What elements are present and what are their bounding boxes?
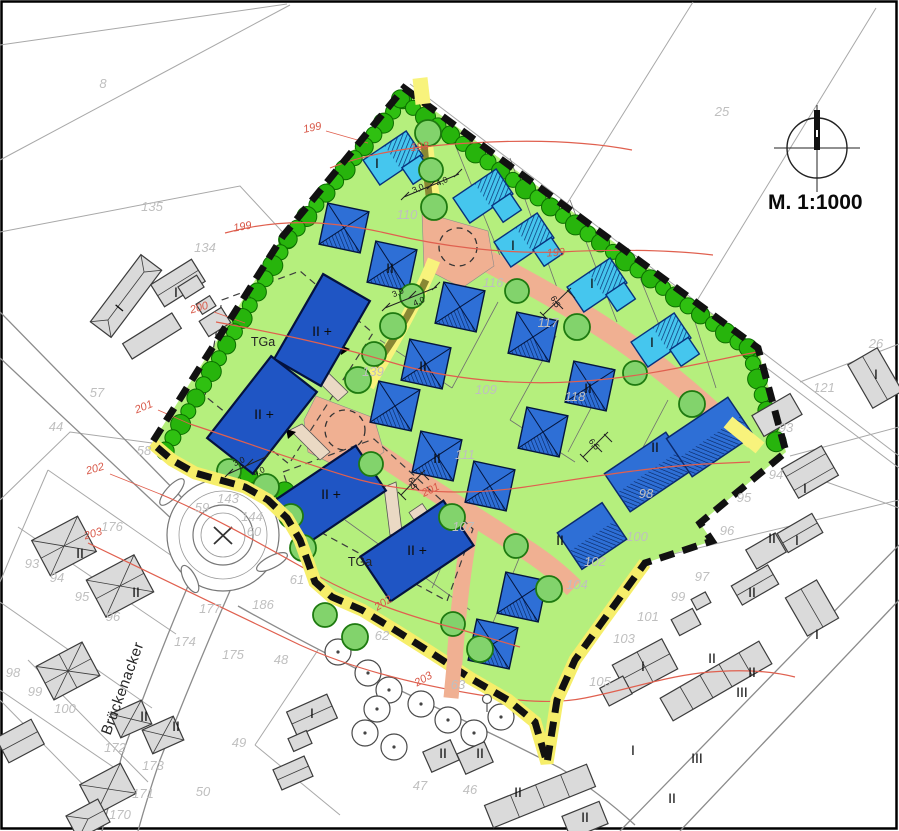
label-parcel-174: 174 <box>174 634 196 649</box>
existing-tree-dot <box>363 731 366 734</box>
label-parcel-96-w: 96 <box>106 609 121 624</box>
street-tree-icon <box>380 313 406 339</box>
label-parcel-25: 25 <box>714 104 730 119</box>
label-house-c5: I <box>650 334 654 350</box>
label-ex-t1b: II <box>476 745 484 761</box>
label-ex-e1: I <box>641 658 645 674</box>
label-parcel-172: 172 <box>104 740 126 755</box>
existing-tree-dot <box>387 688 390 691</box>
label-house-c4: I <box>590 275 594 291</box>
label-parcel-134: 134 <box>194 240 216 255</box>
label-parcel-95-w: 95 <box>75 589 90 604</box>
label-mfh-b3: II + <box>321 486 341 502</box>
label-house-p8: II <box>433 450 441 466</box>
label-parcel-121: 121 <box>813 380 835 395</box>
label-ex-e5: I <box>815 626 819 642</box>
existing-tree-dot <box>446 718 449 721</box>
label-parcel-171: 171 <box>132 786 154 801</box>
label-parcel-63: 63 <box>451 677 466 692</box>
label-parcel-144: 144 <box>241 509 263 524</box>
label-parcel-102: 102 <box>584 554 606 569</box>
label-parcel-98-s: 98 <box>639 486 654 501</box>
label-parcel-186: 186 <box>252 597 274 612</box>
label-parcel-104: 104 <box>566 577 588 592</box>
house-pyramid-5 <box>370 381 420 431</box>
label-parcel-57: 57 <box>90 385 105 400</box>
label-parcel-116: 116 <box>483 275 504 290</box>
label-ex-e3c: III <box>736 684 748 700</box>
label-scale-text: M. 1:1000 <box>768 191 863 214</box>
label-parcel-95-e: 95 <box>737 490 752 505</box>
label-mfh-b1: II + <box>312 323 332 339</box>
label-parcel-118: 118 <box>565 389 586 404</box>
label-contour-199-e: 199 <box>546 246 565 259</box>
street-tree-icon <box>623 361 647 385</box>
street-tree-icon <box>467 636 493 662</box>
label-parcel-93-w: 93 <box>25 556 40 571</box>
street-tree-icon <box>536 576 562 602</box>
street-tree-icon <box>505 279 529 303</box>
label-parcel-143: 143 <box>217 491 239 506</box>
existing-tree-dot <box>499 715 502 718</box>
label-parcel-101: 101 <box>637 609 659 624</box>
label-house-c1: I <box>375 155 379 171</box>
house-pyramid-7 <box>518 407 568 457</box>
label-ex-t4: III <box>691 750 703 766</box>
label-house-p1: II <box>386 260 394 276</box>
label-ex-e3a: II <box>708 650 716 666</box>
label-parcel-135: 135 <box>141 199 163 214</box>
label-parcel-175: 175 <box>222 647 244 662</box>
label-ex-t1a: II <box>439 745 447 761</box>
street-tree-icon <box>564 314 590 340</box>
label-parcel-100-s: 100 <box>626 529 648 544</box>
house-pyramid-2 <box>435 282 485 332</box>
existing-tree-dot <box>419 702 422 705</box>
label-parcel-59: 59 <box>195 500 209 515</box>
label-ex-e3b: II <box>748 664 756 680</box>
label-parcel-61: 61 <box>290 572 304 587</box>
label-parcel-105: 105 <box>589 674 611 689</box>
label-ex-e8: I <box>795 532 799 548</box>
label-parcel-103: 103 <box>613 631 635 646</box>
existing-tree-dot <box>472 731 475 734</box>
label-parcel-96-e: 96 <box>720 523 735 538</box>
street-tree-icon <box>359 452 383 476</box>
label-ex-bl1: I <box>310 705 314 721</box>
label-contour-198: 198 <box>410 140 430 154</box>
label-parcel-176: 176 <box>101 519 123 534</box>
street-tree-icon <box>313 603 337 627</box>
label-ex-e10: I <box>874 366 878 382</box>
label-parcel-139: 139 <box>362 364 384 379</box>
street-tree-icon <box>504 534 528 558</box>
label-parcel-110: 110 <box>397 207 418 222</box>
existing-tree-dot <box>392 745 395 748</box>
label-parcel-94-e: 94 <box>769 467 783 482</box>
label-parcel-49: 49 <box>232 735 246 750</box>
label-parcel-170: 170 <box>109 807 131 822</box>
existing-tree-dot <box>366 671 369 674</box>
label-ex-t5: II <box>668 790 676 806</box>
label-ex-s105: I <box>631 742 635 758</box>
house-pyramid-9 <box>465 461 515 511</box>
label-ex-x2: II <box>132 584 140 600</box>
existing-tree-dot <box>375 707 378 710</box>
label-parcel-46: 46 <box>463 782 478 797</box>
label-ex-e9: II <box>768 530 776 546</box>
label-parcel-8: 8 <box>99 76 107 91</box>
street-tree-icon <box>362 342 386 366</box>
label-parcel-26: 26 <box>868 336 884 351</box>
label-tga-1: TGa <box>251 335 275 349</box>
label-ex-t3: II <box>581 809 589 825</box>
street-tree-icon <box>441 612 465 636</box>
label-ex-x5b: II <box>172 718 180 734</box>
label-parcel-50: 50 <box>196 784 211 799</box>
label-parcel-97: 97 <box>695 569 710 584</box>
label-ex-e4: II <box>748 584 756 600</box>
site-plan-screenshot: 8135134252612193949596979910110310557445… <box>0 0 899 831</box>
label-parcel-48: 48 <box>274 652 289 667</box>
label-parcel-94-w: 94 <box>50 570 64 585</box>
street-tree-icon <box>342 624 368 650</box>
label-ex-t2: II <box>514 784 522 800</box>
label-house-r1: II <box>651 439 659 455</box>
label-parcel-177: 177 <box>199 601 221 616</box>
existing-tree-dot <box>336 650 339 653</box>
label-parcel-173: 173 <box>142 758 164 773</box>
label-mfh-b2: II + <box>254 406 274 422</box>
street-tree-icon <box>679 391 705 417</box>
label-parcel-100-w: 100 <box>54 701 76 716</box>
label-parcel-44: 44 <box>49 419 63 434</box>
label-parcel-98-w: 98 <box>6 665 21 680</box>
label-parcel-117: 117 <box>538 315 559 330</box>
label-parcel-62: 62 <box>375 628 390 643</box>
label-parcel-99-e: 99 <box>671 589 685 604</box>
label-parcel-109: 109 <box>475 382 497 397</box>
label-tga-2: TGa <box>348 555 372 569</box>
label-house-p4: II <box>419 358 427 374</box>
label-parcel-99-w: 99 <box>28 684 42 699</box>
label-house-p6: II <box>584 380 592 396</box>
label-parcel-111: 111 <box>455 447 475 462</box>
label-house-r3: II <box>556 532 564 548</box>
label-mfh-b4: II + <box>407 542 427 558</box>
label-house-c3: I <box>511 237 515 253</box>
street-tree-icon <box>421 194 447 220</box>
label-parcel-107: 107 <box>452 519 474 534</box>
label-ex-x1: II <box>76 545 84 561</box>
label-parcel-47: 47 <box>413 778 428 793</box>
site-plan-svg: 8135134252612193949596979910110310557445… <box>0 0 899 831</box>
label-ex-x5a: II <box>140 708 148 724</box>
label-parcel-93-e: 93 <box>779 420 794 435</box>
label-parcel-58: 58 <box>137 443 152 458</box>
label-parcel-60: 60 <box>247 524 262 539</box>
label-ex-g2: I <box>174 284 178 300</box>
label-ex-e7: I <box>803 480 807 496</box>
